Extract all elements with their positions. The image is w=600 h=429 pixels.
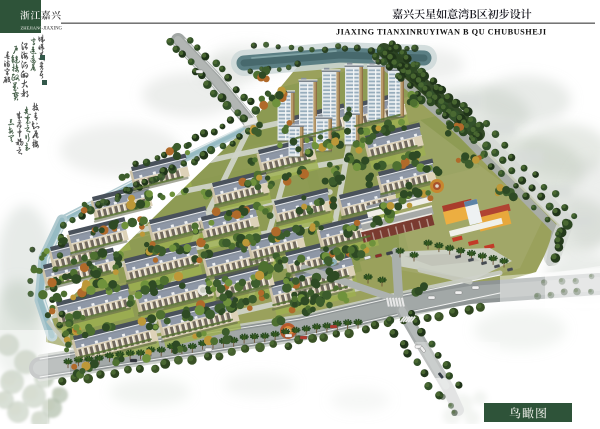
svg-text:-JIAXING: -JIAXING <box>42 27 63 32</box>
svg-text:ZHEJIANG: ZHEJIANG <box>21 26 44 31</box>
svg-text:JIAXING TIANXINRUYIWAN B QU CH: JIAXING TIANXINRUYIWAN B QU CHUBUSHEJI <box>336 28 547 37</box>
